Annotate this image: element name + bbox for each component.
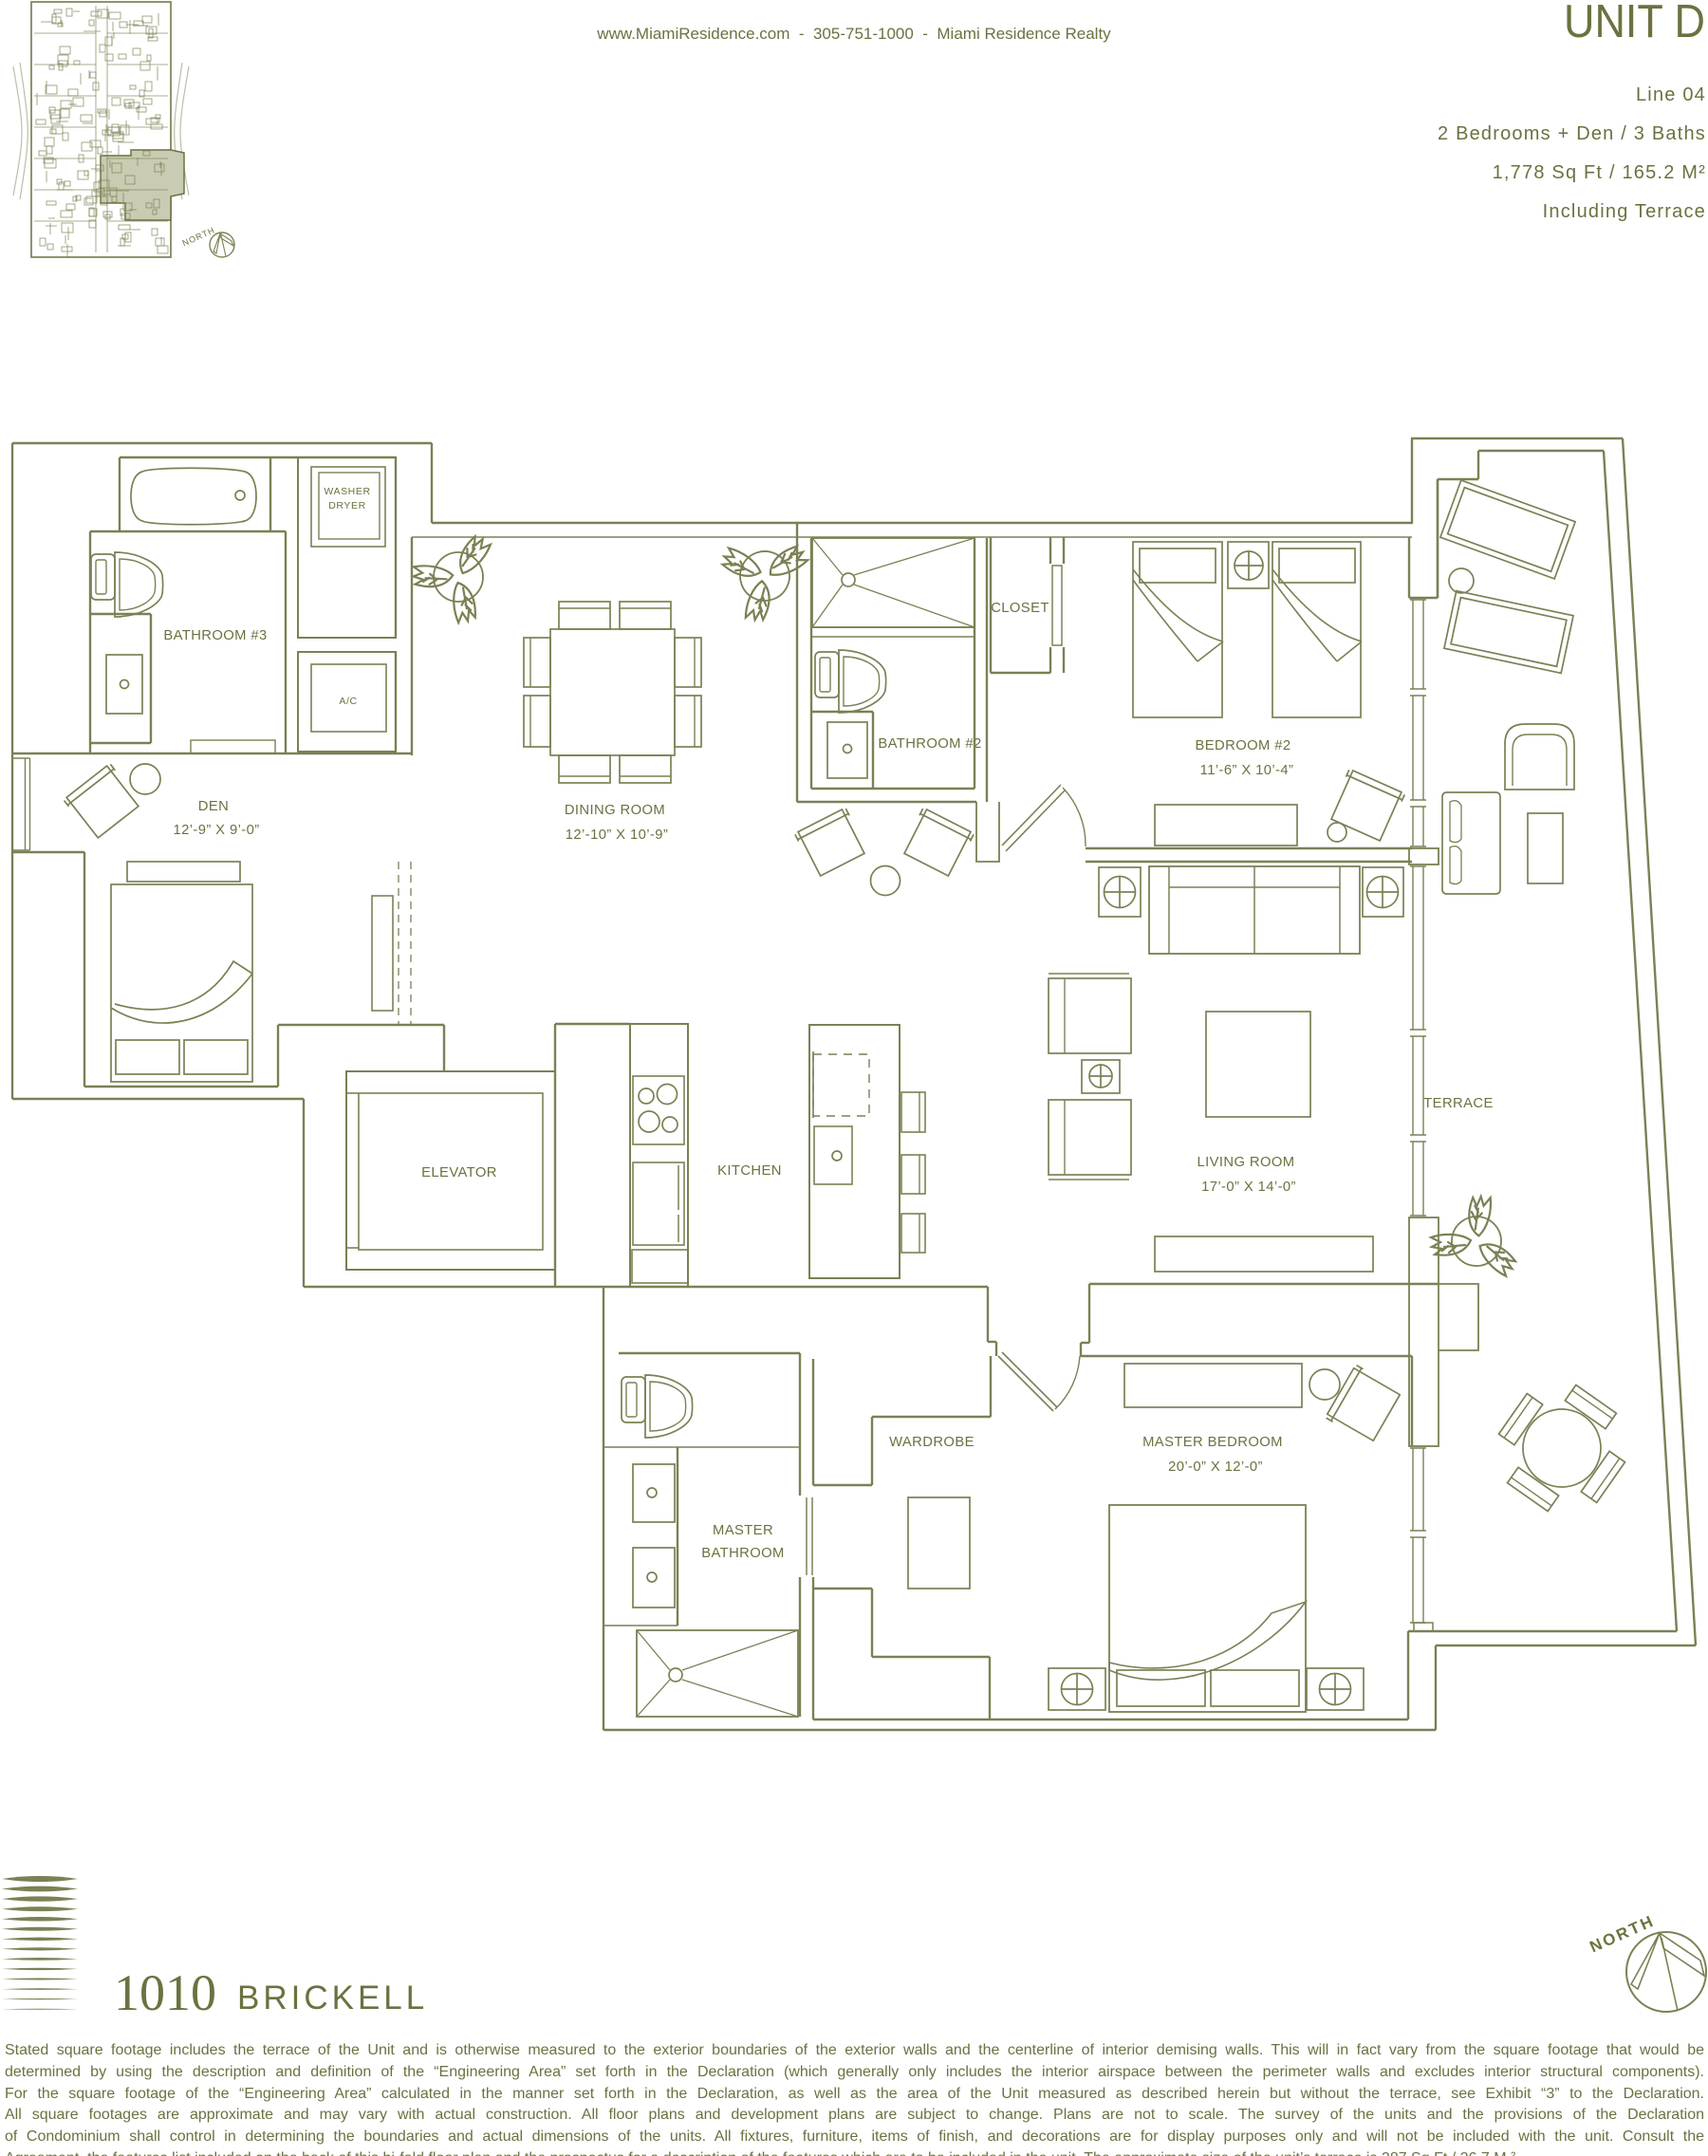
svg-text:DEN: DEN [198, 799, 229, 814]
svg-text:WARDROBE: WARDROBE [889, 1435, 975, 1450]
svg-text:20’-0” X 12’-0”: 20’-0” X 12’-0” [1168, 1459, 1263, 1475]
svg-text:12’-9” X 9’-0”: 12’-9” X 9’-0” [173, 823, 259, 838]
svg-text:BATHROOM #3: BATHROOM #3 [163, 628, 267, 643]
svg-text:1010: 1010 [114, 1964, 216, 2021]
svg-text:DRYER: DRYER [328, 500, 366, 511]
svg-text:11’-6” X 10’-4”: 11’-6” X 10’-4” [1200, 763, 1294, 778]
svg-text:NORTH: NORTH [1587, 1911, 1657, 1956]
svg-text:LIVING ROOM: LIVING ROOM [1197, 1155, 1294, 1170]
svg-text:MASTER: MASTER [713, 1523, 773, 1538]
svg-text:17’-0” X 14’-0”: 17’-0” X 14’-0” [1201, 1180, 1296, 1195]
svg-text:KITCHEN: KITCHEN [717, 1163, 782, 1179]
svg-text:MASTER BEDROOM: MASTER BEDROOM [1142, 1435, 1283, 1450]
svg-text:NORTH: NORTH [180, 225, 216, 248]
svg-text:ELEVATOR: ELEVATOR [421, 1165, 497, 1180]
svg-text:CLOSET: CLOSET [991, 601, 1049, 616]
svg-text:UNIT D: UNIT D [1564, 0, 1705, 47]
svg-text:BATHROOM #2: BATHROOM #2 [878, 736, 981, 752]
svg-text:DINING ROOM: DINING ROOM [565, 803, 665, 818]
svg-text:BEDROOM #2: BEDROOM #2 [1195, 738, 1290, 753]
svg-text:BATHROOM: BATHROOM [701, 1546, 785, 1561]
svg-text:BRICKELL: BRICKELL [237, 1979, 428, 2017]
svg-text:A/C: A/C [339, 696, 357, 707]
svg-text:WASHER: WASHER [324, 486, 370, 497]
svg-text:12’-10” X 10’-9”: 12’-10” X 10’-9” [566, 827, 668, 843]
svg-text:TERRACE: TERRACE [1423, 1096, 1494, 1111]
